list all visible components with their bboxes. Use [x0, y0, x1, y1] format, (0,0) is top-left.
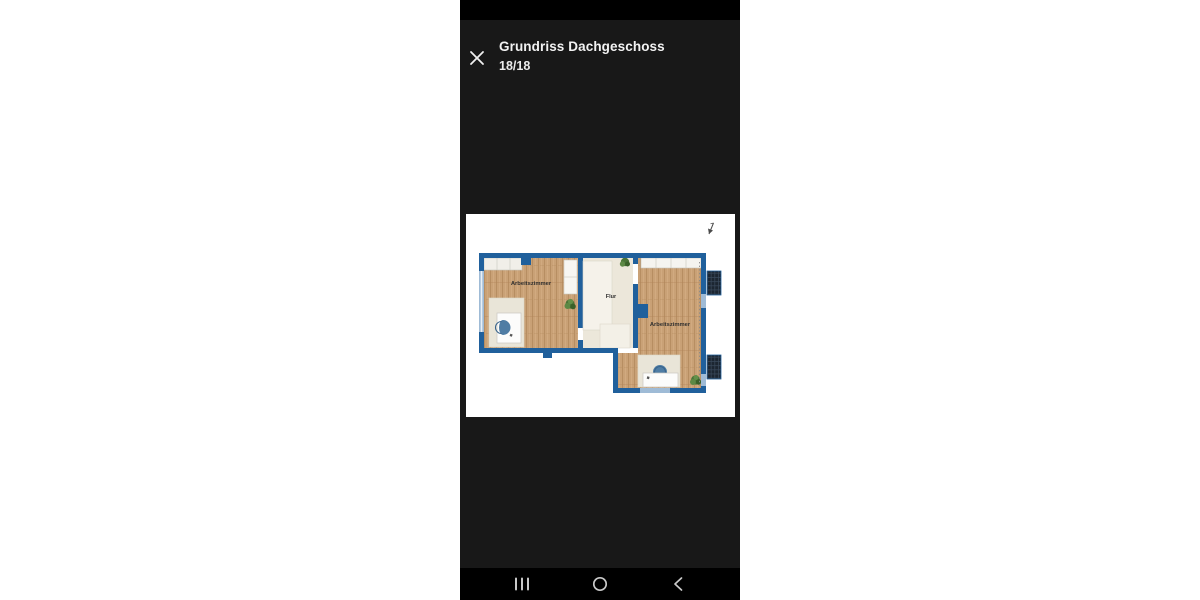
recents-button[interactable] [483, 568, 561, 600]
floorplan-drawing: Arbeitszimmer Flur [466, 214, 735, 417]
home-button[interactable] [561, 568, 639, 600]
status-bar [460, 0, 740, 20]
room-label: Arbeitszimmer [511, 281, 552, 287]
image-counter: 18/18 [499, 58, 665, 74]
gallery-header: Grundriss Dachgeschoss 18/18 [460, 20, 740, 80]
phone-screenshot: Grundriss Dachgeschoss 18/18 [460, 0, 740, 600]
room-label: Flur [606, 294, 617, 300]
room-left-arbeitszimmer: Arbeitszimmer [479, 253, 583, 358]
floorplan-image[interactable]: Arbeitszimmer Flur [466, 214, 735, 417]
title-block: Grundriss Dachgeschoss 18/18 [499, 38, 665, 74]
close-button[interactable] [467, 48, 487, 68]
recents-icon [514, 577, 530, 591]
android-nav-bar [460, 568, 740, 600]
close-icon [467, 48, 487, 68]
room-label: Arbeitszimmer [650, 322, 691, 328]
back-button[interactable] [639, 568, 717, 600]
page-title: Grundriss Dachgeschoss [499, 38, 665, 55]
home-icon [592, 576, 608, 592]
back-icon [672, 576, 684, 592]
